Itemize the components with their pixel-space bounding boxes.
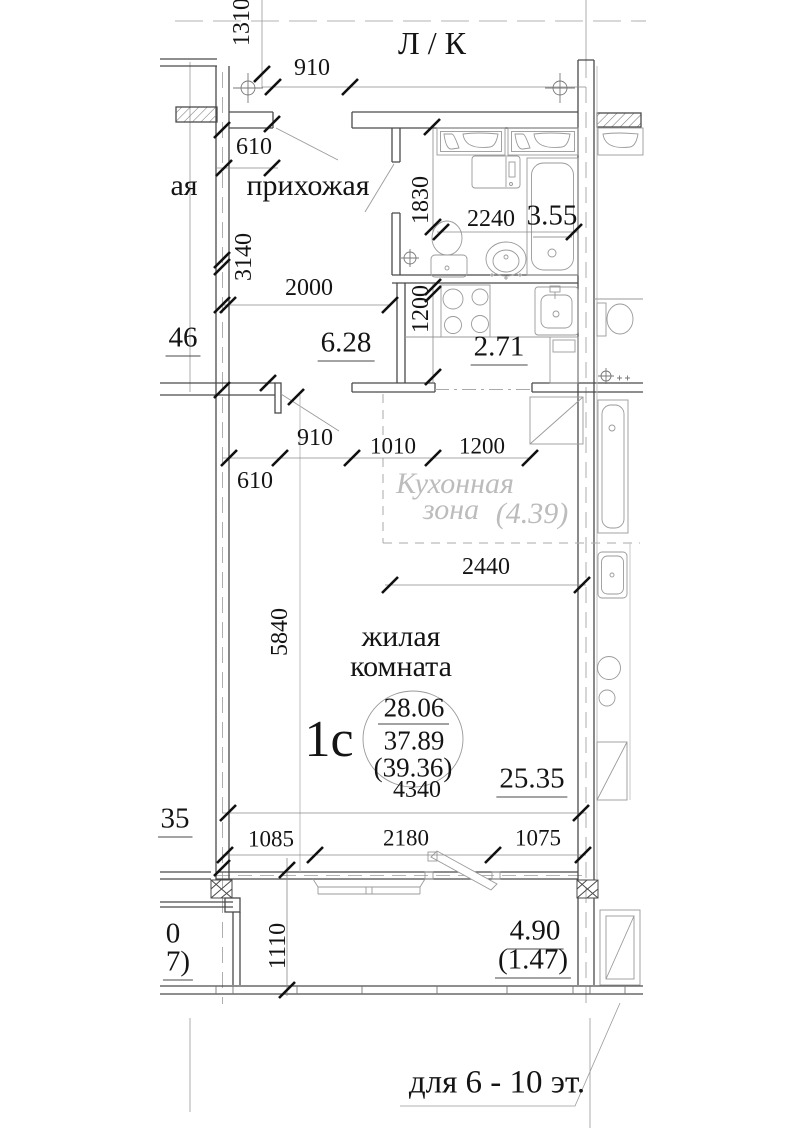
dim-1010: 1010 bbox=[370, 435, 416, 458]
column-hatch-boxes bbox=[211, 880, 598, 898]
dim-610-entry: 610 bbox=[236, 135, 272, 159]
dim-1200-zone: 1200 bbox=[459, 435, 505, 458]
living-room-label-line2: комната bbox=[350, 652, 452, 682]
balcony-area-coeff: (1.47) bbox=[495, 946, 571, 979]
dim-5840: 5840 bbox=[268, 608, 292, 656]
dim-1310: 1310 bbox=[230, 0, 254, 46]
toilet-icon bbox=[431, 221, 467, 277]
washing-machine-icon bbox=[472, 156, 520, 188]
kitchen-duct-icon bbox=[550, 337, 578, 383]
neighbor-area-partial-7: 7) bbox=[163, 948, 193, 981]
balcony-rail-mullions bbox=[216, 986, 625, 994]
hallway-label: прихожая bbox=[246, 171, 369, 201]
neighbor-toilet-icon bbox=[597, 303, 633, 336]
floors-note: для 6 - 10 эт. bbox=[409, 1067, 585, 1100]
dim-2240: 2240 bbox=[467, 207, 515, 231]
neighbor-bathtub-icon bbox=[598, 400, 628, 533]
dim-1075: 1075 bbox=[515, 827, 561, 850]
hallway-area: 6.28 bbox=[318, 329, 375, 362]
neighbor-stove-icon bbox=[598, 657, 621, 707]
neighbor-sink-icon bbox=[598, 552, 627, 598]
living-area-value: 28.06 bbox=[384, 695, 445, 722]
washbasin-icon bbox=[486, 242, 526, 280]
neighbor-area-partial-0: 0 bbox=[166, 920, 181, 949]
dim-2000: 2000 bbox=[285, 276, 333, 300]
dim-1085: 1085 bbox=[248, 828, 294, 851]
dim-1110: 1110 bbox=[266, 923, 290, 969]
dim-2440: 2440 bbox=[462, 555, 510, 579]
neighbor-cabinet-icon bbox=[597, 742, 627, 800]
neighbor-area-partial-35: 35 bbox=[158, 805, 193, 838]
kitchen-zone-area: (4.39) bbox=[496, 499, 568, 529]
dim-4340: 4340 bbox=[393, 778, 441, 802]
neighbor-area-partial-46: 46 bbox=[166, 324, 201, 357]
vent-duct-icon bbox=[437, 128, 578, 155]
dim-910-living: 910 bbox=[297, 426, 333, 450]
left-crop-mask bbox=[0, 0, 158, 1131]
living-room-label-line1: жилая bbox=[362, 622, 441, 652]
bathroom-area: 3.55 bbox=[527, 202, 578, 231]
dim-3140: 3140 bbox=[232, 233, 256, 281]
dim-1830: 1830 bbox=[409, 176, 433, 224]
floor-plan-canvas: 1310 Л / К 910 610 ая прихожая 1830 2240… bbox=[0, 0, 800, 1131]
dim-910-entry: 910 bbox=[294, 56, 330, 80]
kitchen-area: 2.71 bbox=[471, 333, 528, 366]
neighbor-room-label-partial: ая bbox=[170, 171, 197, 201]
kitchen-sink-icon bbox=[535, 286, 578, 335]
fridge-cabinet-icon bbox=[530, 397, 583, 444]
stairwell-label: Л / К bbox=[398, 27, 466, 59]
dim-610-living: 610 bbox=[237, 469, 273, 493]
neighbor-fixtures bbox=[594, 66, 643, 985]
kitchen-zone-label-line2: зона bbox=[423, 495, 479, 525]
apartment-type: 1с bbox=[304, 714, 353, 766]
total-area-value: 37.89 bbox=[384, 728, 445, 755]
dim-2180: 2180 bbox=[383, 827, 429, 850]
stove-icon bbox=[441, 285, 490, 337]
living-room-area: 25.35 bbox=[496, 765, 567, 798]
dim-1200-kitchen: 1200 bbox=[409, 285, 433, 333]
neighbor-balcony-window bbox=[600, 910, 640, 985]
